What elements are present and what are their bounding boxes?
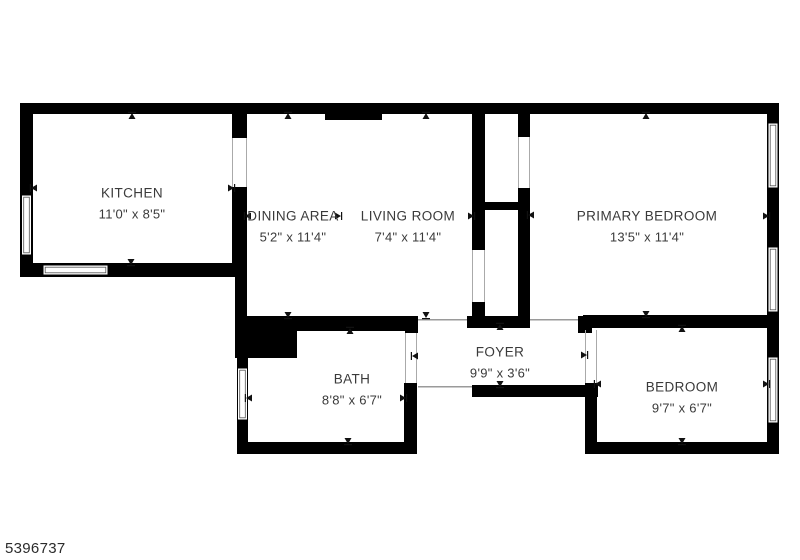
dimension-marker-foyer-right-icon (581, 351, 588, 359)
dimension-marker-foyer-left-icon (411, 352, 418, 360)
door-opening (472, 250, 473, 302)
wall (405, 316, 418, 333)
floorplan-drawing (0, 0, 800, 560)
passage-line (530, 319, 578, 321)
wall (235, 316, 418, 331)
dimension-marker-kitchen-down-icon (127, 259, 135, 266)
room-label-living-room: LIVING ROOM 7'4" x 11'4" (361, 207, 455, 248)
wall (232, 103, 247, 138)
wall (472, 302, 485, 318)
room-name: BEDROOM (646, 378, 719, 398)
wall (404, 383, 417, 454)
room-label-dining-area: DINING AREA 5'2" x 11'4" (247, 207, 338, 248)
dimension-marker-living-room-down-icon (422, 312, 430, 319)
wall (237, 442, 417, 454)
dimension-marker-kitchen-left-icon (30, 184, 37, 192)
passage-line (418, 386, 472, 388)
plan-id-text: 5396737 (5, 540, 66, 557)
dimension-marker-bath-right-icon (400, 394, 407, 402)
door-opening (405, 333, 406, 383)
room-dims: 8'8" x 6'7" (322, 391, 382, 411)
dimension-marker-bath-left-icon (245, 394, 252, 402)
wall (518, 103, 530, 137)
dimension-marker-primary-bedroom-right-icon (763, 212, 770, 220)
dimension-marker-primary-bedroom-left-icon (527, 211, 534, 219)
dimension-marker-primary-bedroom-down-icon (642, 311, 650, 318)
window (768, 123, 778, 188)
room-name: KITCHEN (99, 184, 166, 204)
room-dims: 13'5" x 11'4" (577, 228, 718, 248)
door-opening (585, 330, 586, 383)
room-label-bath: BATH 8'8" x 6'7" (322, 370, 382, 411)
room-dims: 9'7" x 6'7" (646, 399, 719, 419)
dimension-marker-kitchen-up-icon (128, 112, 136, 119)
dimension-marker-living-room-up-icon (422, 112, 430, 119)
room-dims: 7'4" x 11'4" (361, 228, 455, 248)
door-opening (518, 137, 519, 188)
room-label-bedroom: BEDROOM 9'7" x 6'7" (646, 378, 719, 419)
door-opening (246, 138, 247, 187)
wall (518, 188, 530, 318)
wall (583, 315, 779, 328)
wall (472, 103, 485, 250)
window (768, 247, 778, 312)
window (22, 195, 32, 255)
room-dims: 9'9" x 3'6" (470, 364, 530, 384)
door-opening (484, 250, 485, 302)
window (43, 265, 108, 275)
dimension-marker-bedroom-up-icon (678, 325, 686, 332)
room-name: DINING AREA (247, 207, 338, 227)
room-dims: 11'0" x 8'5" (99, 205, 166, 225)
dimension-marker-bath-down-icon (344, 438, 352, 445)
room-name: BATH (322, 370, 382, 390)
dimension-marker-dining-area-down-icon (284, 312, 292, 319)
wall (232, 187, 247, 263)
room-name: FOYER (470, 343, 530, 363)
door-opening (232, 138, 233, 187)
room-label-kitchen: KITCHEN 11'0" x 8'5" (99, 184, 166, 225)
wall (325, 103, 382, 120)
wall (235, 277, 247, 318)
room-dims: 5'2" x 11'4" (247, 228, 338, 248)
dimension-marker-dining-area-up-icon (284, 112, 292, 119)
dimension-marker-primary-bedroom-up-icon (642, 112, 650, 119)
door-opening (596, 330, 597, 383)
room-name: PRIMARY BEDROOM (577, 207, 718, 227)
passage-line (418, 319, 467, 321)
wall (467, 316, 530, 328)
room-name: LIVING ROOM (361, 207, 455, 227)
room-label-primary-bedroom: PRIMARY BEDROOM 13'5" x 11'4" (577, 207, 718, 248)
door-opening (529, 137, 530, 188)
dimension-marker-kitchen-right-icon (228, 184, 235, 192)
room-label-foyer: FOYER 9'9" x 3'6" (470, 343, 530, 384)
floorplan-canvas: KITCHEN 11'0" x 8'5" DINING AREA 5'2" x … (0, 0, 800, 560)
dimension-marker-bedroom-right-icon (763, 380, 770, 388)
dimension-marker-bedroom-down-icon (678, 438, 686, 445)
dimension-marker-living-room-right-icon (468, 212, 475, 220)
window (768, 357, 778, 423)
wall (472, 385, 598, 397)
